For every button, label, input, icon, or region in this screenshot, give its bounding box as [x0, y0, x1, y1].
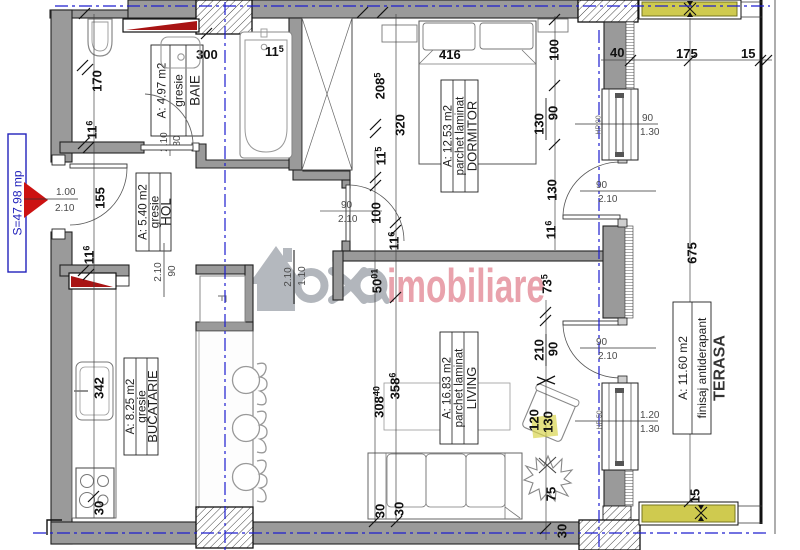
svg-text:320: 320 [393, 114, 408, 136]
svg-text:30: 30 [392, 502, 407, 516]
svg-text:A: 11.60 m2: A: 11.60 m2 [676, 336, 690, 400]
svg-text:90: 90 [546, 342, 561, 356]
svg-text:A: 16.83 m2: A: 16.83 m2 [442, 357, 454, 419]
svg-text:130: 130 [532, 113, 547, 135]
svg-text:90: 90 [341, 200, 353, 211]
svg-text:75: 75 [544, 487, 559, 501]
svg-text:finisaj antiderapant: finisaj antiderapant [695, 317, 709, 418]
svg-text:30: 30 [555, 524, 570, 538]
svg-text:2.10: 2.10 [283, 267, 294, 287]
svg-text:1.20: 1.20 [640, 410, 660, 421]
svg-text:416: 416 [439, 47, 461, 62]
svg-text:A: 4.97 m2: A: 4.97 m2 [157, 63, 169, 119]
svg-text:HP 50: HP 50 [597, 410, 604, 429]
svg-text:gresie: gresie [148, 195, 162, 228]
svg-text:130: 130 [545, 179, 560, 201]
svg-text:120: 120 [527, 409, 542, 431]
svg-text:1.30: 1.30 [640, 424, 660, 435]
svg-text:40: 40 [610, 45, 624, 60]
svg-text:parchet laminat: parchet laminat [454, 348, 466, 427]
svg-text:90: 90 [167, 265, 178, 277]
svg-text:parchet laminat: parchet laminat [455, 96, 467, 175]
svg-text:2.10: 2.10 [598, 194, 618, 205]
svg-text:100: 100 [547, 39, 562, 61]
svg-text:175: 175 [676, 46, 698, 61]
svg-text:1.30: 1.30 [640, 127, 660, 138]
svg-text:imobiliare: imobiliare [387, 259, 545, 312]
svg-text:DORMITOR: DORMITOR [465, 101, 480, 172]
svg-text:A: 12.53 m2: A: 12.53 m2 [443, 105, 455, 167]
svg-text:90: 90 [596, 337, 608, 348]
svg-text:1.00: 1.00 [56, 187, 76, 198]
svg-text:LIVING: LIVING [464, 367, 479, 410]
svg-text:210: 210 [532, 339, 547, 361]
svg-text:170: 170 [90, 70, 105, 92]
svg-text:300: 300 [196, 47, 218, 62]
svg-text:HP 90: HP 90 [596, 115, 603, 134]
svg-text:15: 15 [741, 46, 755, 61]
svg-text:90: 90 [546, 106, 561, 120]
svg-text:S=47.98 mp: S=47.98 mp [11, 170, 25, 235]
svg-text:TERASA: TERASA [712, 335, 729, 401]
svg-text:A: 8.25 m2: A: 8.25 m2 [125, 379, 137, 435]
svg-text:2.10: 2.10 [338, 214, 358, 225]
svg-text:100: 100 [369, 202, 384, 224]
svg-text:2.10: 2.10 [598, 351, 618, 362]
svg-text:155: 155 [93, 187, 108, 209]
svg-text:1.10: 1.10 [297, 266, 308, 286]
svg-text:30: 30 [92, 501, 107, 515]
svg-text:130: 130 [541, 411, 556, 433]
svg-text:BAIE: BAIE [188, 75, 203, 106]
svg-text:gresie: gresie [172, 74, 186, 107]
svg-text:675: 675 [685, 242, 700, 264]
svg-text:2.10: 2.10 [153, 262, 164, 282]
svg-text:90: 90 [596, 180, 608, 191]
svg-text:2.10: 2.10 [55, 203, 75, 214]
svg-text:90: 90 [642, 113, 654, 124]
svg-text:A: 5.40 m2: A: 5.40 m2 [138, 184, 150, 240]
svg-text:342: 342 [92, 377, 107, 399]
